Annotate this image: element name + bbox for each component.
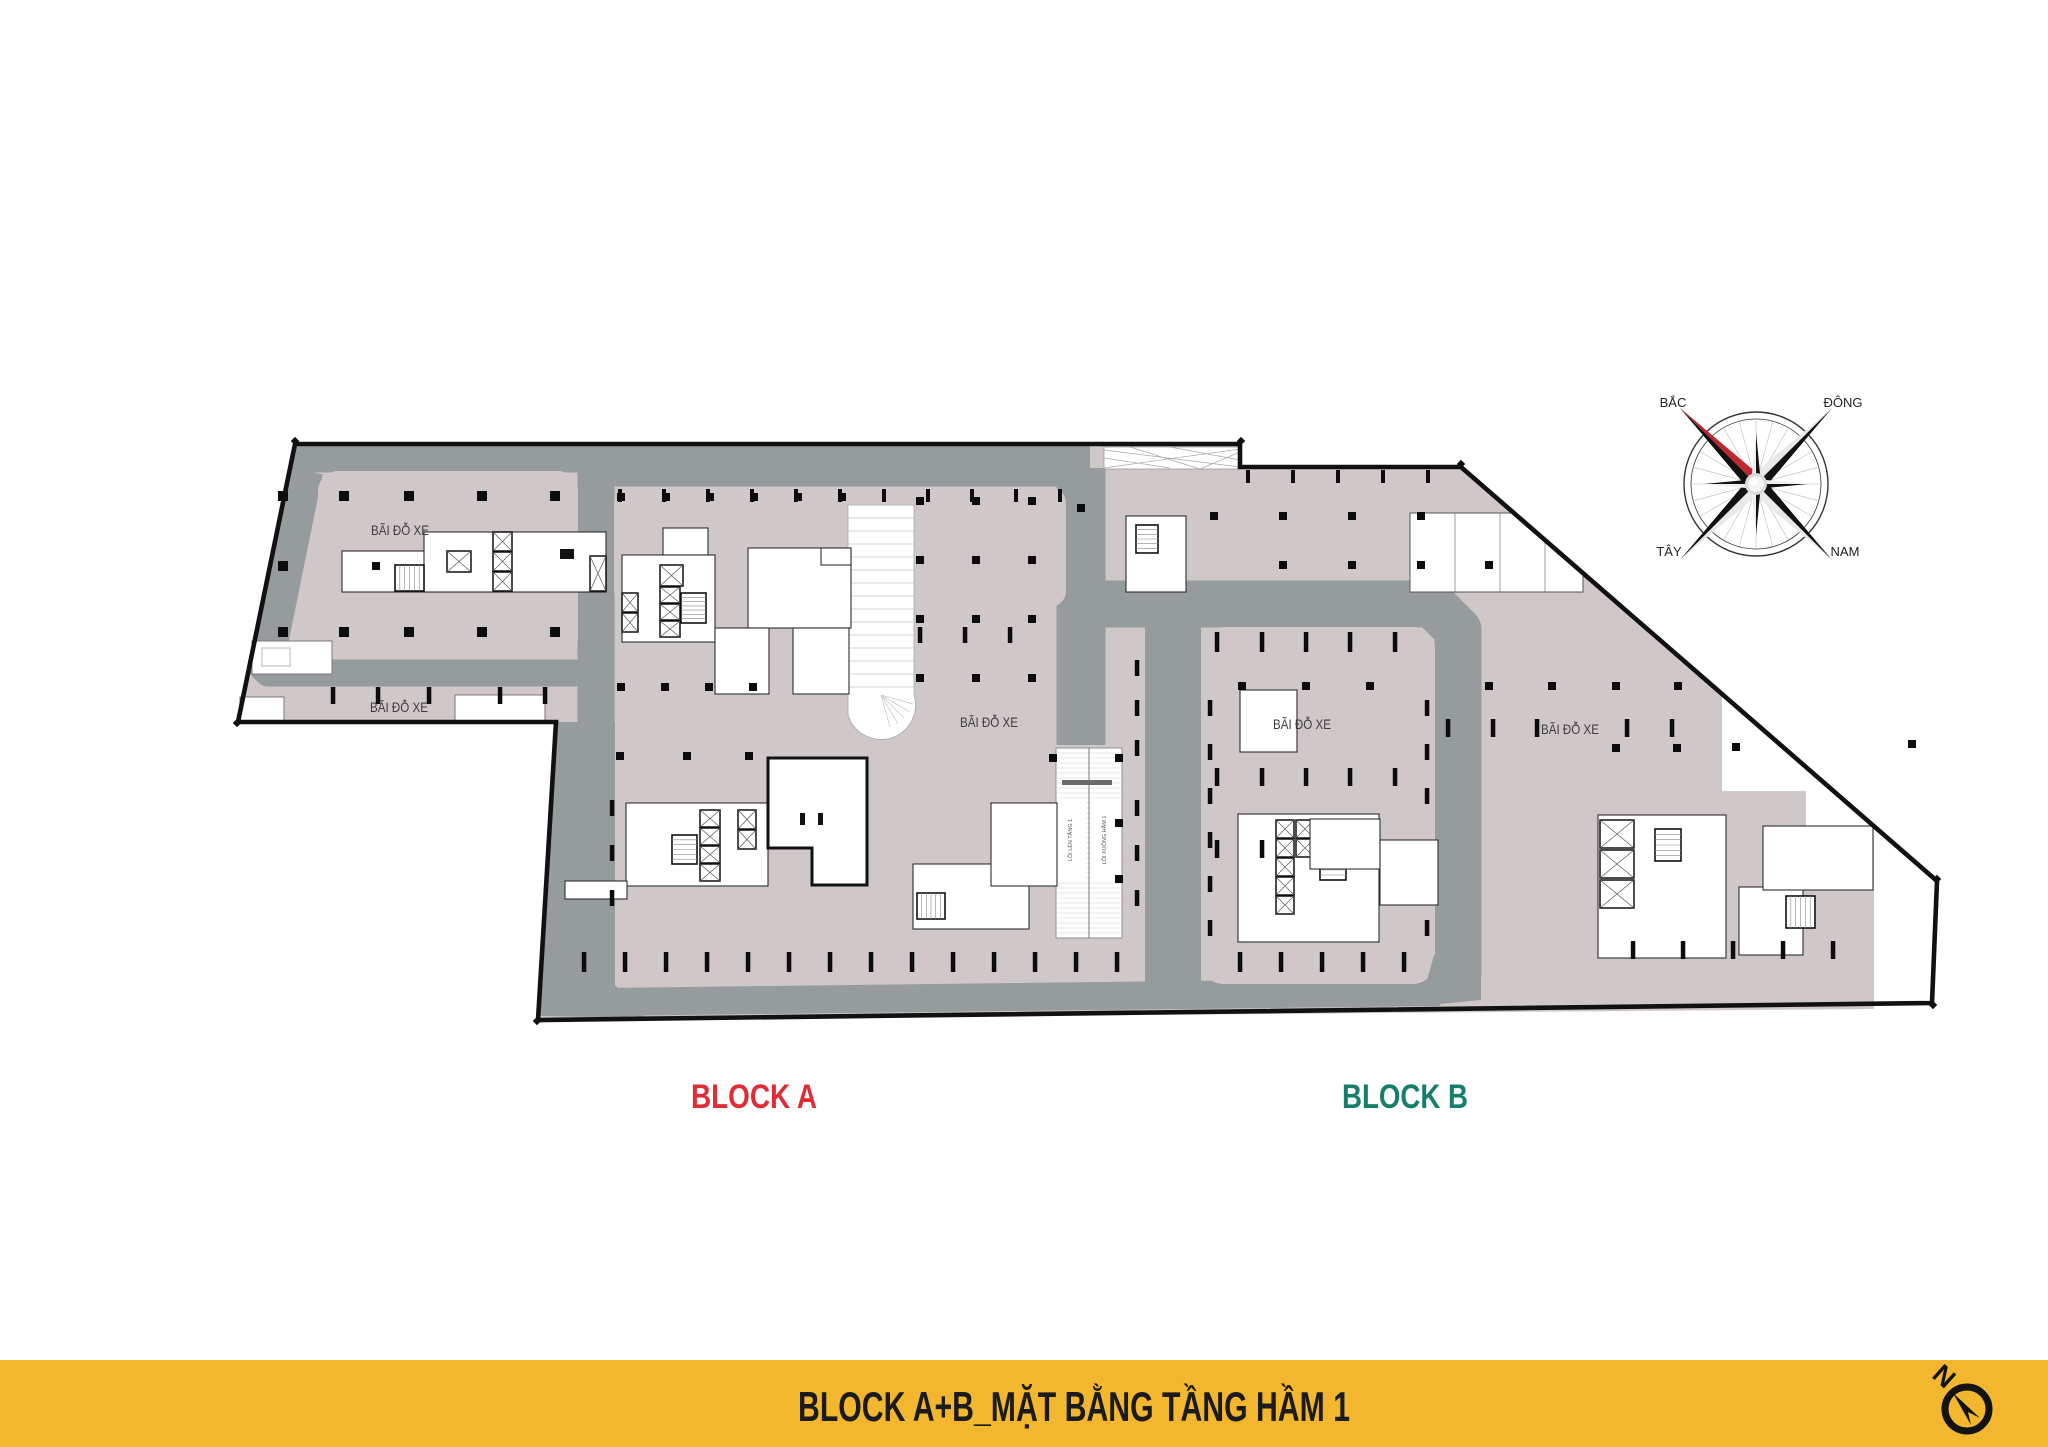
svg-text:BLOCK A+B_MẶT BẰNG TẦNG HẦM 1: BLOCK A+B_MẶT BẰNG TẦNG HẦM 1: [798, 1383, 1350, 1430]
svg-text:BÃI ĐỖ XE: BÃI ĐỖ XE: [1273, 715, 1331, 732]
svg-text:TÂY: TÂY: [1656, 544, 1682, 559]
svg-text:BLOCK B: BLOCK B: [1342, 1078, 1468, 1116]
svg-text:LỒI LÊN TẦNG 1: LỒI LÊN TẦNG 1: [1066, 819, 1074, 861]
svg-text:ĐÔNG: ĐÔNG: [1824, 395, 1863, 410]
svg-text:BÃI ĐỖ XE: BÃI ĐỖ XE: [1541, 720, 1599, 737]
svg-text:NAM: NAM: [1831, 544, 1860, 559]
svg-text:BÃI ĐỖ XE: BÃI ĐỖ XE: [370, 698, 428, 715]
svg-text:BẮC: BẮC: [1660, 395, 1687, 410]
svg-text:BÃI ĐỖ XE: BÃI ĐỖ XE: [371, 521, 429, 538]
svg-text:LỐI XUỐNG HẦM 1: LỐI XUỐNG HẦM 1: [1101, 816, 1108, 865]
svg-text:BÃI ĐỖ XE: BÃI ĐỖ XE: [960, 713, 1018, 730]
svg-text:BLOCK A: BLOCK A: [691, 1078, 817, 1116]
